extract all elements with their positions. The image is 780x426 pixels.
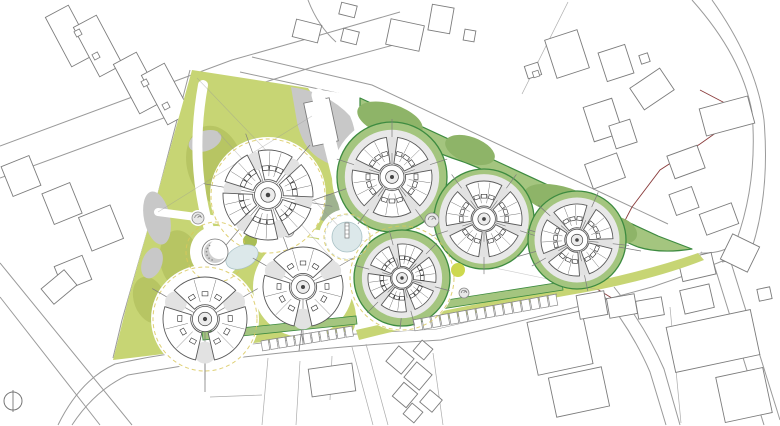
- context-building: [463, 29, 476, 42]
- context-building: [636, 297, 665, 319]
- core-dot: [266, 193, 271, 198]
- parking-stall: [261, 340, 270, 351]
- context-building: [527, 311, 593, 375]
- parking-stall: [467, 309, 477, 321]
- site-plan-map: [0, 0, 780, 426]
- parking-stall: [476, 307, 486, 319]
- parking-stall: [548, 294, 558, 306]
- core-dot: [400, 276, 403, 279]
- parking-stall: [512, 301, 522, 313]
- jetty: [345, 223, 349, 238]
- context-building: [716, 368, 773, 423]
- parking-stall: [449, 312, 459, 324]
- parking-stall: [485, 306, 495, 318]
- parking-stall: [521, 299, 531, 311]
- parking-stall: [336, 328, 345, 339]
- core-dot: [301, 285, 305, 289]
- parking-stall: [328, 329, 337, 340]
- core-dot: [482, 217, 486, 221]
- parking-stall: [286, 336, 295, 347]
- pavilion-dot: [207, 247, 209, 249]
- parking-stall: [269, 338, 278, 349]
- pavilion-court: [209, 239, 229, 259]
- pavilion-dot: [209, 245, 211, 247]
- core-dot: [575, 238, 579, 242]
- parking-stall: [345, 326, 354, 337]
- pavilion-dot: [211, 259, 213, 261]
- context-building: [576, 291, 608, 319]
- parking-stall: [303, 333, 312, 344]
- core-dot: [203, 317, 207, 321]
- parking-stall: [422, 317, 432, 329]
- site-plan-page: [0, 0, 780, 426]
- core-dot: [390, 175, 394, 179]
- pavilion-dot: [208, 257, 210, 259]
- context-building: [428, 4, 454, 33]
- parking-stall: [539, 296, 549, 308]
- context-building: [757, 287, 772, 301]
- parking-stall: [530, 297, 540, 309]
- pavilion-dot: [206, 251, 208, 253]
- parking-stall: [294, 334, 303, 345]
- context-building: [308, 363, 355, 397]
- parking-stall: [494, 304, 504, 316]
- context-building: [606, 294, 637, 319]
- parking-stall: [278, 337, 287, 348]
- parking-stall: [320, 330, 329, 341]
- parking-stall: [503, 302, 513, 314]
- parking-stall: [458, 310, 468, 322]
- pavilion-dot: [206, 254, 208, 256]
- building-window-mark: [532, 70, 540, 78]
- parking-stall: [311, 332, 320, 343]
- parking-stall: [440, 314, 450, 326]
